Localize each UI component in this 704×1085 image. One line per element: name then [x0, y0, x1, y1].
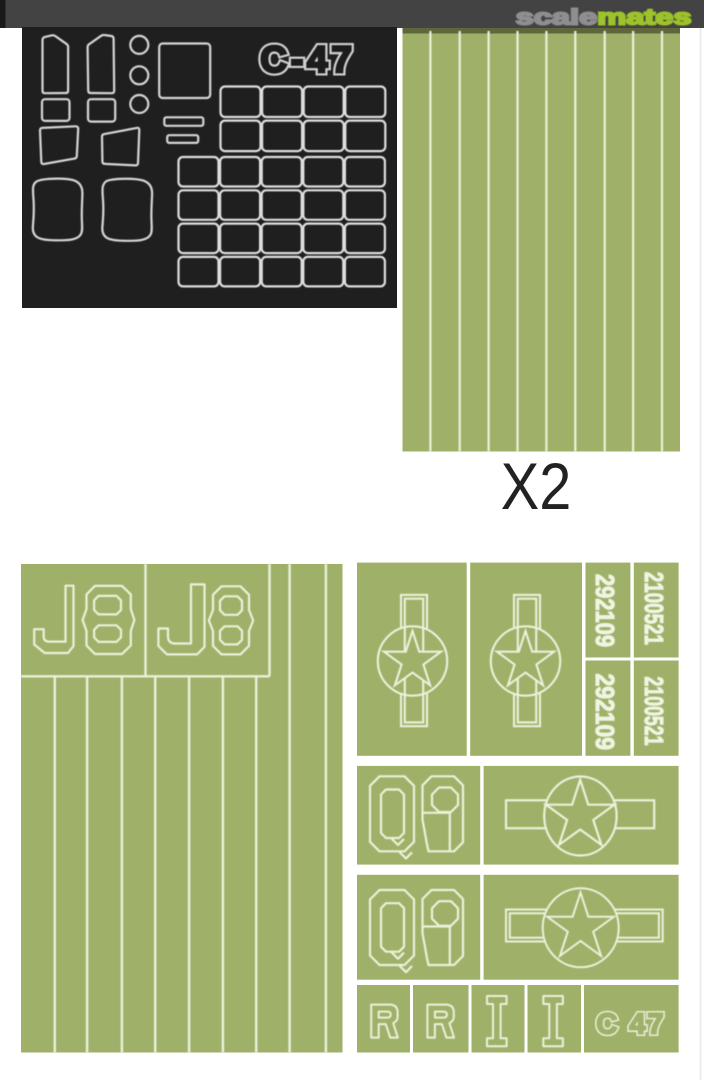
- svg-text:scalemates: scalemates: [516, 4, 692, 29]
- svg-text:2100521: 2100521: [639, 677, 669, 746]
- svg-text:X2: X2: [501, 451, 571, 524]
- svg-text:292109: 292109: [590, 574, 620, 647]
- svg-text:292109: 292109: [590, 674, 620, 751]
- svg-text:2100521: 2100521: [639, 572, 669, 645]
- svg-text:C 47: C 47: [596, 1009, 665, 1041]
- svg-text:C-47: C-47: [260, 39, 355, 80]
